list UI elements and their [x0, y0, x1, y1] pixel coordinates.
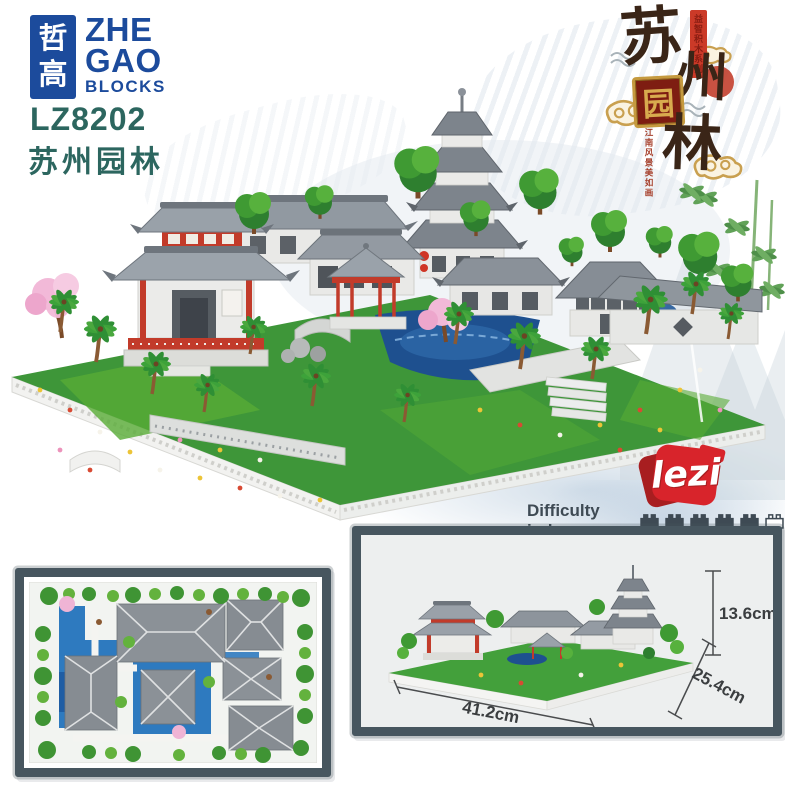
top-view-photo: [29, 582, 317, 763]
calligraphy-char-su: 苏: [618, 4, 684, 70]
brand-logo: 哲 高 ZHE GAO BLOCKS: [30, 15, 166, 99]
calligraphy-tagline: 江南风景美如画: [643, 128, 655, 198]
dimension-height-label: 13.6cm: [719, 604, 773, 623]
brand-logo-char-bottom: 高: [38, 57, 67, 93]
brand-logo-char-top: 哲: [38, 21, 67, 57]
lezi-logo-text: lezi: [650, 452, 722, 497]
product-model-number: LZ8202: [30, 101, 146, 138]
top-view-frame: [15, 568, 331, 777]
brand-name-line3: BLOCKS: [85, 79, 166, 95]
product-name-chinese: 苏州园林: [28, 137, 164, 181]
product-poster: 哲 高 ZHE GAO BLOCKS LZ8202 苏州园林 益智积木系列 苏 …: [0, 0, 785, 785]
brand-name-line2: GAO: [85, 46, 166, 77]
calligraphy-char-lin: 林: [661, 113, 723, 175]
lezi-logo: lezi: [634, 442, 734, 510]
side-view-photo: 13.6cm 41.2cm 25.4cm: [361, 535, 773, 727]
brand-logo-box: 哲 高: [30, 15, 76, 99]
brand-logo-text: ZHE GAO BLOCKS: [85, 15, 166, 99]
side-view-frame: 13.6cm 41.2cm 25.4cm: [352, 526, 782, 736]
